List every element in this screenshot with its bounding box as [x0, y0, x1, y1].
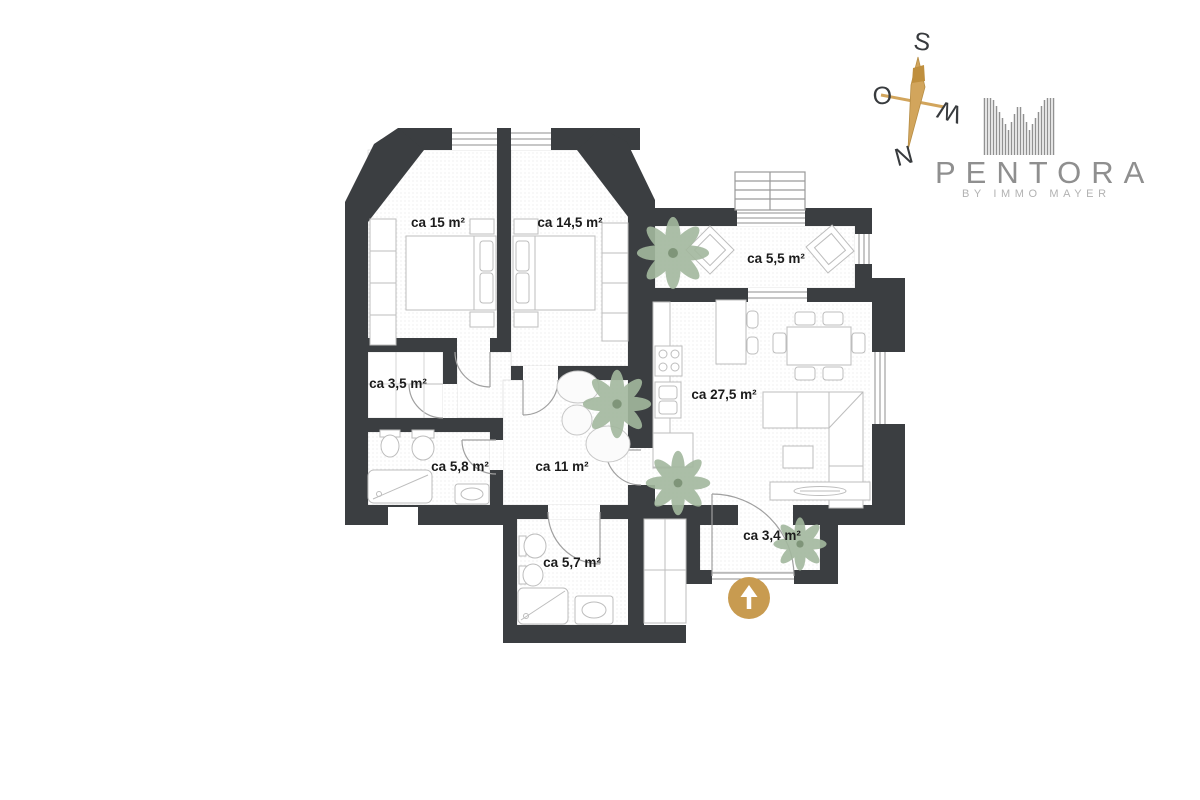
brand-name: PENTORA [935, 155, 1154, 190]
window-balcony-door [748, 288, 807, 302]
page: ca 15 m² ca 14,5 m² ca 5,5 m² ca 3,5 m² … [0, 0, 1200, 800]
plant-hallway [583, 370, 651, 438]
entrance-marker [728, 577, 770, 619]
wardrobe-bedroom-1 [370, 219, 396, 345]
shower [518, 588, 568, 624]
label-shower-room: ca 5,7 m² [543, 555, 601, 570]
compass-letter-east: O [872, 81, 893, 110]
wardrobe-bedroom-2 [602, 223, 628, 341]
window-balcony-right [855, 234, 872, 264]
bidet-bathroom [380, 430, 400, 457]
label-entry: ca 3,4 m² [743, 528, 801, 543]
brand-mark-icon [985, 98, 1054, 155]
sideboard [770, 482, 870, 500]
stove [655, 346, 682, 376]
label-storage: ca 3,5 m² [369, 376, 427, 391]
plant-entry [773, 517, 826, 570]
window-living-right [872, 352, 905, 424]
label-hallway: ca 11 m² [535, 459, 589, 474]
washbasin-shower-room [575, 596, 613, 624]
label-balcony: ca 5,5 m² [747, 251, 805, 266]
bathtub [368, 470, 432, 503]
plant-balcony [637, 217, 709, 289]
brand-tagline: BY IMMO MAYER [962, 188, 1111, 200]
plant-living [646, 451, 711, 516]
entry-closet [644, 519, 686, 623]
label-bedroom-2: ca 14,5 m² [537, 215, 603, 230]
window-bedroom-2 [511, 128, 551, 150]
bidet-shower-room [519, 564, 543, 586]
compass-letter-south: S [912, 27, 932, 57]
label-bedroom-1: ca 15 m² [411, 215, 466, 230]
floorplan-canvas: ca 15 m² ca 14,5 m² ca 5,5 m² ca 3,5 m² … [0, 0, 1200, 800]
label-living: ca 27,5 m² [691, 387, 757, 402]
coffee-table [783, 446, 813, 468]
toilet-bathroom [412, 430, 434, 460]
washbasin-bathroom [455, 484, 489, 504]
toilet-shower-room [519, 534, 546, 558]
compass-letter-west: W [934, 95, 965, 129]
compass-letter-north: N [892, 140, 917, 172]
compass: S O W N [872, 27, 965, 172]
stairs [735, 172, 805, 210]
wall-niche [388, 507, 418, 525]
label-bathroom: ca 5,8 m² [431, 459, 489, 474]
brand-logo: PENTORA BY IMMO MAYER [935, 98, 1154, 200]
window-bedroom-1 [452, 128, 497, 150]
kitchen-sink [655, 382, 681, 418]
window-balcony-top [737, 208, 805, 226]
